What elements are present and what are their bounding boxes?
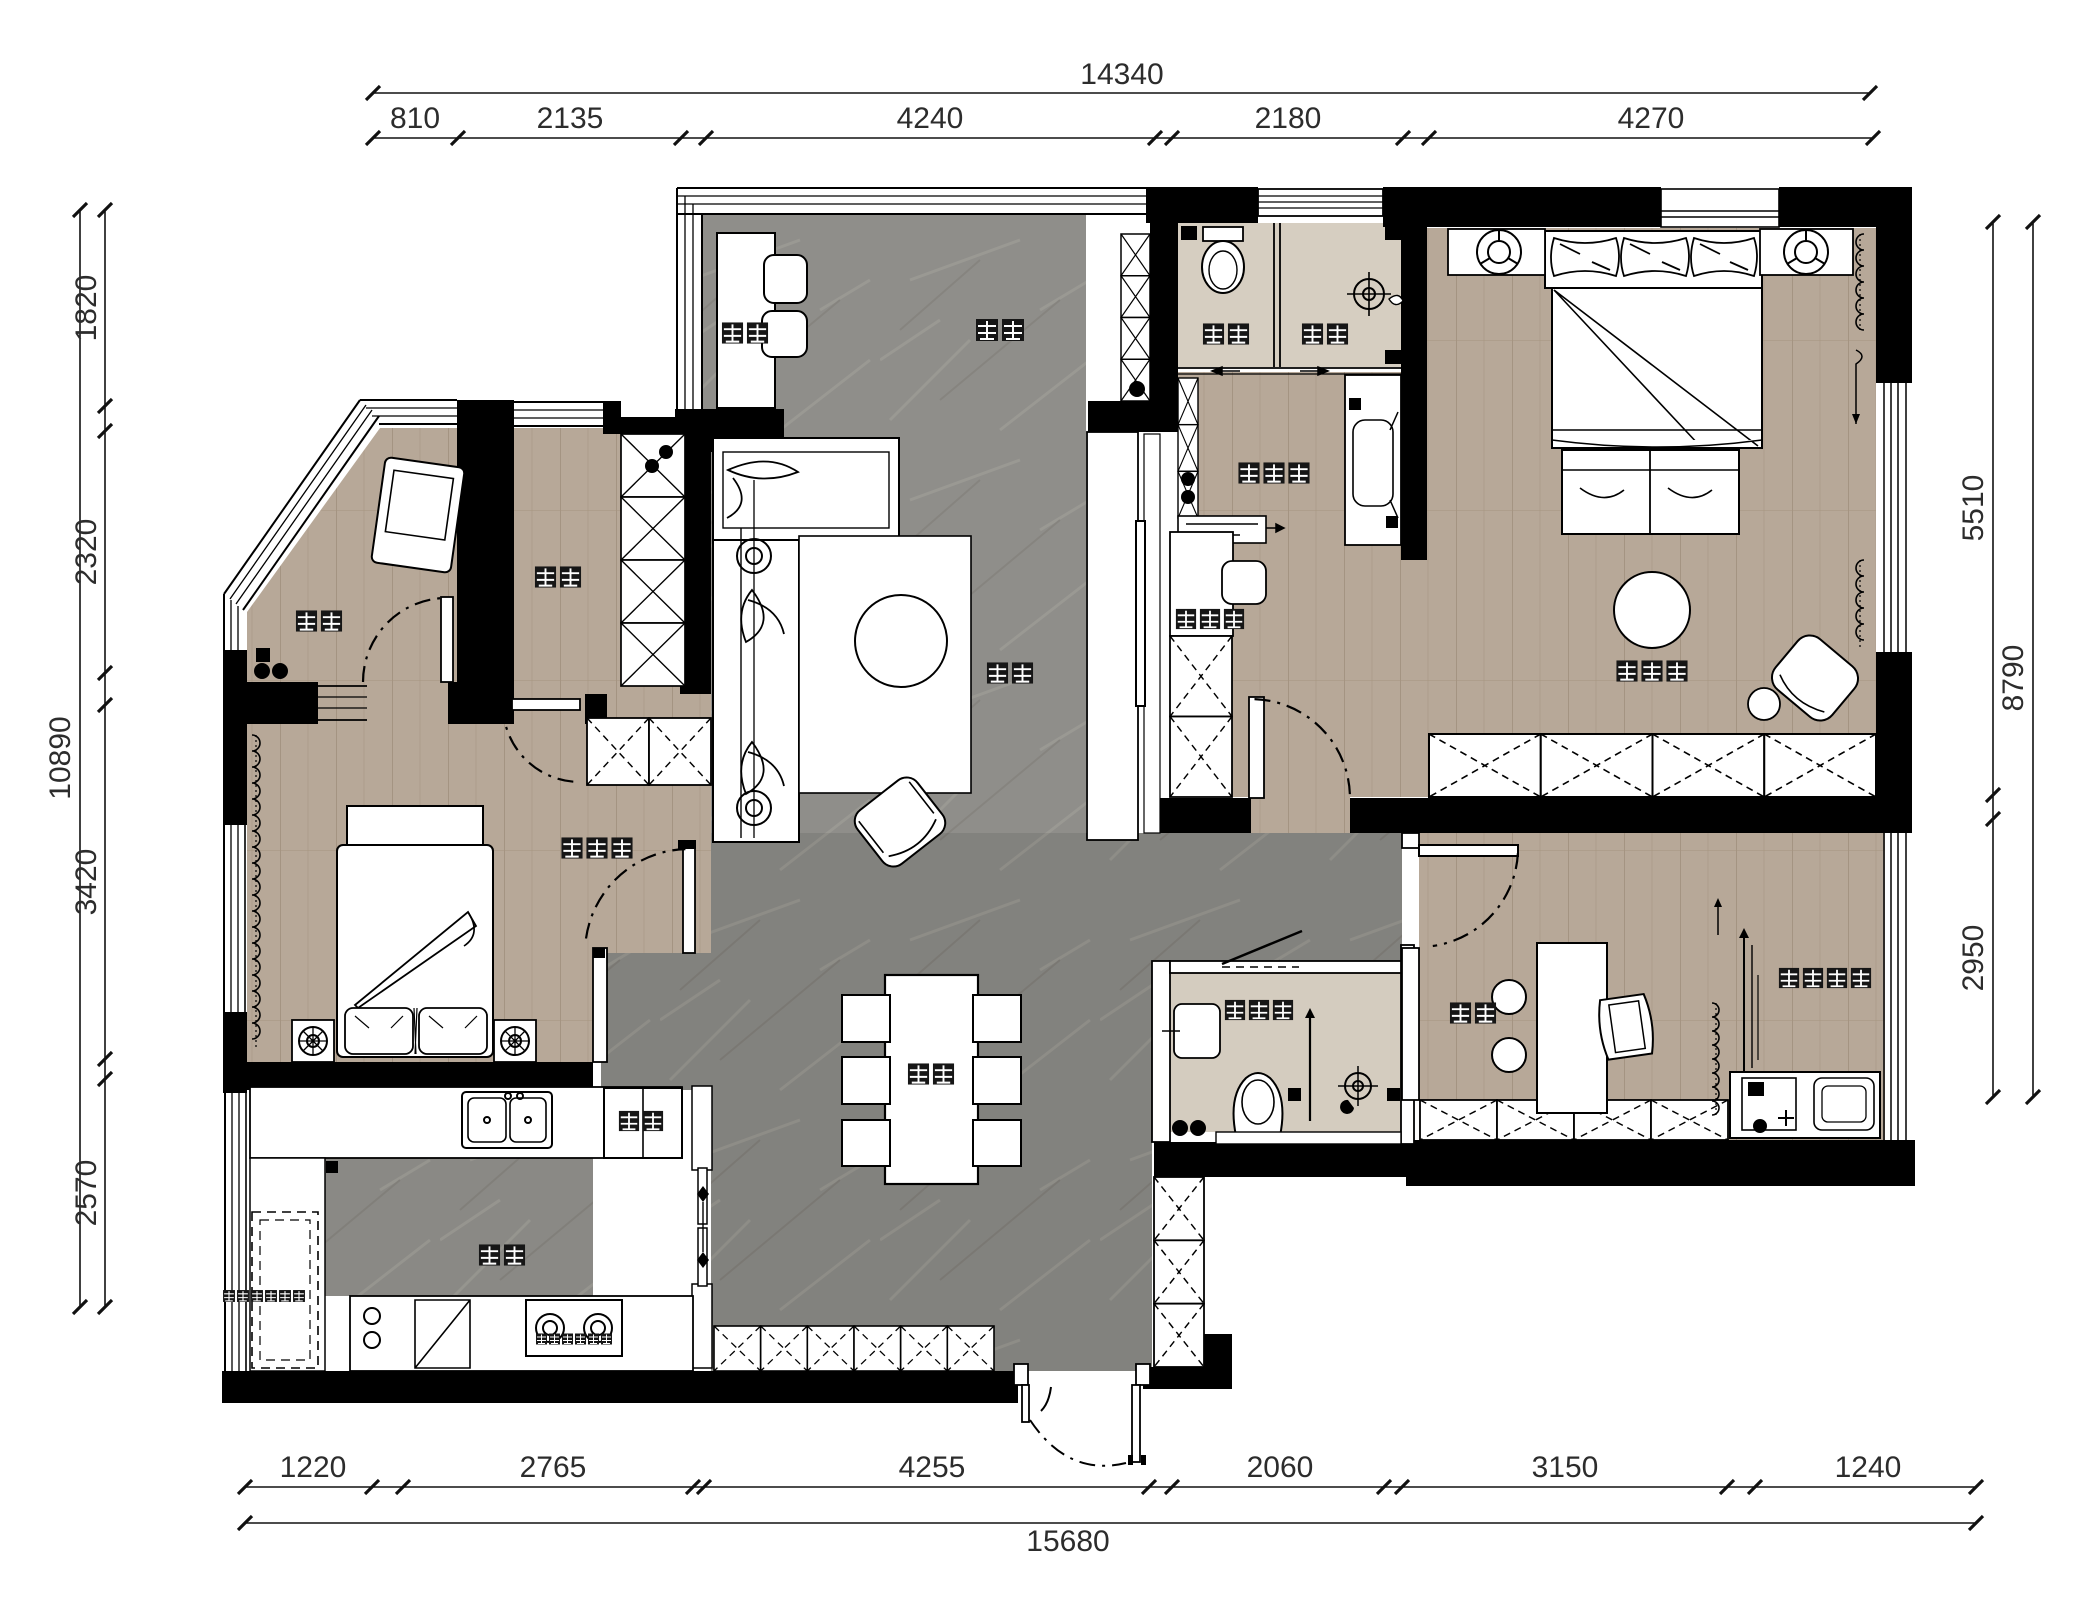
svg-text:15680: 15680 — [1026, 1525, 1109, 1558]
svg-text:14340: 14340 — [1080, 58, 1163, 91]
svg-text:3150: 3150 — [1532, 1451, 1599, 1484]
svg-text:2765: 2765 — [520, 1451, 587, 1484]
svg-text:1820: 1820 — [70, 275, 103, 342]
svg-text:2060: 2060 — [1247, 1451, 1314, 1484]
svg-text:2320: 2320 — [70, 519, 103, 586]
svg-text:1240: 1240 — [1835, 1451, 1902, 1484]
svg-text:10890: 10890 — [44, 716, 77, 799]
svg-text:3420: 3420 — [70, 849, 103, 916]
svg-text:2570: 2570 — [70, 1160, 103, 1227]
svg-text:5510: 5510 — [1957, 475, 1990, 542]
svg-text:4270: 4270 — [1618, 102, 1685, 135]
svg-text:2180: 2180 — [1255, 102, 1322, 135]
svg-text:810: 810 — [390, 102, 440, 135]
svg-text:2950: 2950 — [1957, 925, 1990, 992]
svg-text:2135: 2135 — [537, 102, 604, 135]
svg-text:4240: 4240 — [897, 102, 964, 135]
svg-text:1220: 1220 — [280, 1451, 347, 1484]
svg-text:8790: 8790 — [1997, 645, 2030, 712]
svg-text:4255: 4255 — [899, 1451, 966, 1484]
